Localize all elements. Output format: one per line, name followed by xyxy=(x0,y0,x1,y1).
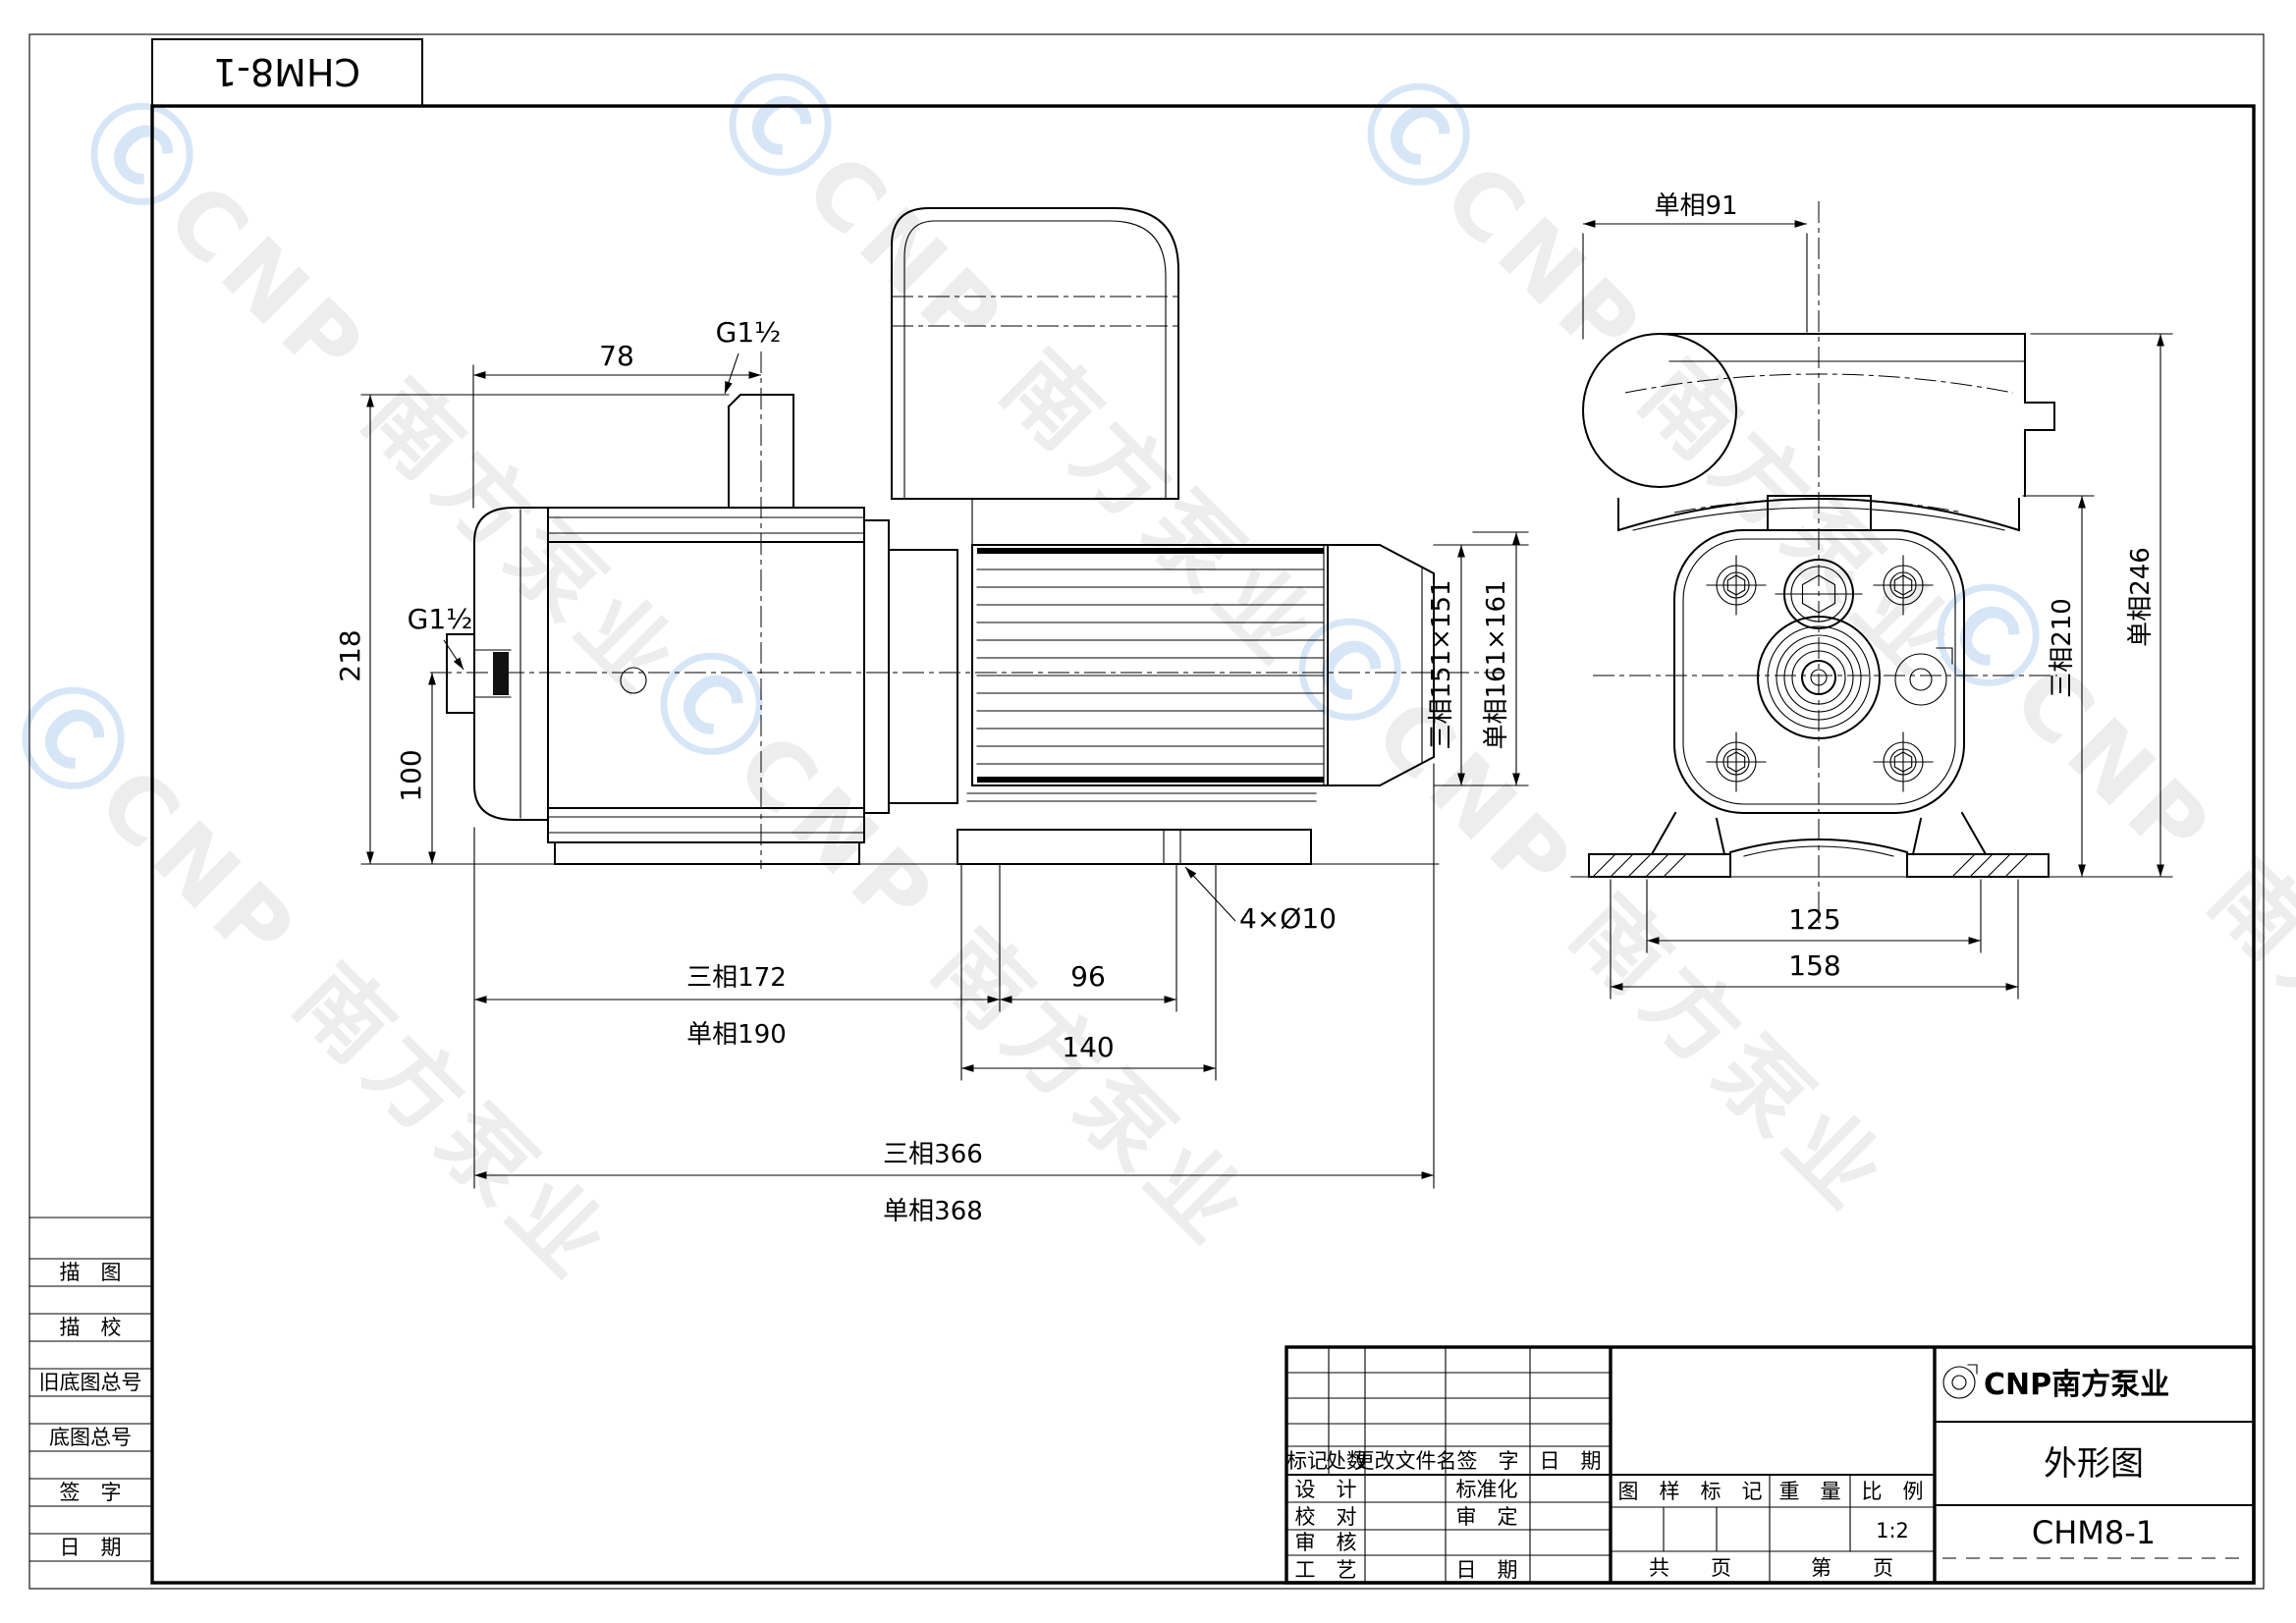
dim-tri-172-label: 三相172 xyxy=(686,963,787,993)
dim-218-label: 218 xyxy=(334,629,366,681)
dim-125-label: 125 xyxy=(1788,903,1840,936)
cnp-brand-logo-icon xyxy=(1943,1365,1977,1398)
model-number: CHM8-1 xyxy=(2032,1514,2156,1551)
corner-bolt xyxy=(1874,732,1933,791)
dim-tri-210-label: 三相210 xyxy=(2048,598,2077,698)
dim-single-190-label: 单相190 xyxy=(686,1020,787,1050)
dim-holes-label: 4×Ø10 xyxy=(1239,902,1337,935)
dim-single-368-label: 单相368 xyxy=(883,1197,983,1226)
dim-tri-square-label: 三相151×151 xyxy=(1427,579,1456,749)
port-left-size-label: G1½ xyxy=(408,603,473,635)
sidebar-row-label: 日 期 xyxy=(60,1536,122,1559)
dim-single-square-label: 单相161×161 xyxy=(1482,579,1511,749)
rev-col-sign: 签 字 xyxy=(1457,1449,1519,1473)
row-date-label: 日 期 xyxy=(1456,1558,1518,1582)
stamp-weight-label: 重 量 xyxy=(1779,1480,1841,1503)
sidebar-row-label: 旧底图总号 xyxy=(39,1371,142,1394)
corner-model-label: CHM8-1 xyxy=(213,50,360,93)
pages-total-label: 共 页 xyxy=(1649,1556,1731,1580)
row-standard-label: 标准化 xyxy=(1456,1478,1518,1501)
pages-no-label: 第 页 xyxy=(1811,1556,1893,1580)
row-design-label: 设 计 xyxy=(1295,1478,1357,1501)
dim-158-label: 158 xyxy=(1788,949,1840,982)
sidebar-row-label: 描 校 xyxy=(60,1316,122,1339)
port-top-size-label: G1½ xyxy=(716,316,782,349)
scale-value: 1:2 xyxy=(1876,1519,1909,1542)
rev-col-file: 更改文件名 xyxy=(1354,1449,1457,1473)
sheet-borders xyxy=(29,34,2264,1589)
cad-drawing: CHM8-1 描 图 描 校 旧底图总号 底图总号 签 字 日 期 xyxy=(0,0,2296,1623)
sidebar-row-label: 底图总号 xyxy=(49,1426,132,1449)
sidebar-table: 描 图 描 校 旧底图总号 底图总号 签 字 日 期 xyxy=(29,1217,152,1561)
dim-single-246-label: 单相246 xyxy=(2126,547,2156,647)
dim-140-label: 140 xyxy=(1062,1031,1114,1063)
title-block: 标记 处数 更改文件名 签 字 日 期 设 计 标准化 校 对 审 定 审 核 … xyxy=(1286,1347,2254,1583)
sidebar-row-label: 签 字 xyxy=(60,1481,122,1504)
corner-bolt xyxy=(1707,556,1766,615)
rev-col-date: 日 期 xyxy=(1540,1449,1602,1473)
doc-title: 外形图 xyxy=(2044,1444,2144,1484)
dim-78-label: 78 xyxy=(599,340,634,372)
side-view-geometry xyxy=(430,208,1503,869)
stamp-mark-label: 图 样 标 记 xyxy=(1618,1480,1763,1503)
sidebar-row-label: 描 图 xyxy=(60,1261,122,1284)
dim-100-label: 100 xyxy=(395,749,427,801)
dim-tri-366-label: 三相366 xyxy=(883,1140,983,1169)
row-approve-label: 审 定 xyxy=(1456,1505,1518,1529)
brand-name: CNP南方泵业 xyxy=(1984,1368,2169,1402)
row-audit-label: 审 核 xyxy=(1295,1531,1357,1554)
stamp-scale-label: 比 例 xyxy=(1862,1480,1924,1503)
dim-single-91-label: 单相91 xyxy=(1654,191,1737,221)
corner-bolt xyxy=(1874,556,1933,615)
row-process-label: 工 艺 xyxy=(1295,1558,1357,1582)
drawing-sheet: ⒸCNP 南方泵业 ⒸCNP 南方泵业 ⒸCNP 南方泵业 ⒸCNP 南方泵业 … xyxy=(0,0,2296,1623)
side-view-dimensions: 78 G1½ G1½ 218 100 三相172 单相190 96 140 4×… xyxy=(334,316,1528,1226)
rev-col-mark: 标记 xyxy=(1286,1449,1328,1473)
dim-96-label: 96 xyxy=(1070,960,1106,993)
cnp-cast-logo-icon xyxy=(1895,648,1952,705)
corner-bolt xyxy=(1707,732,1766,791)
row-check-label: 校 对 xyxy=(1295,1505,1357,1529)
